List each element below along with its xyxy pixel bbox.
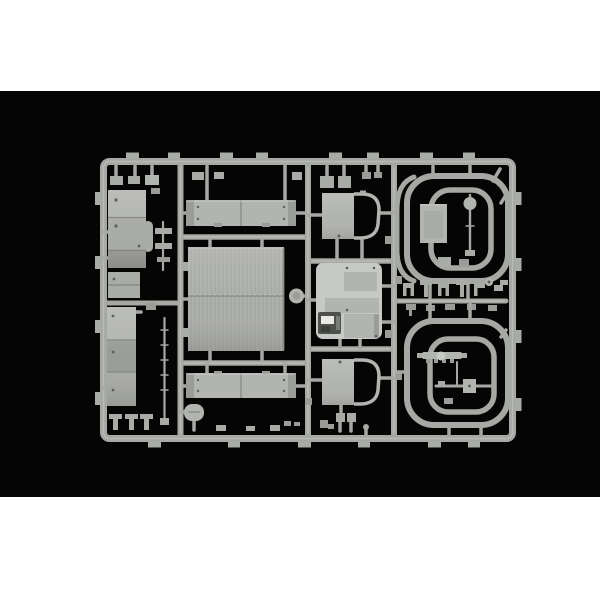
small-feet-parts xyxy=(109,414,153,430)
photo xyxy=(0,0,600,600)
sprue-photo-illustration xyxy=(0,0,600,600)
cargo-side-panel-small xyxy=(108,272,140,298)
grille-part xyxy=(318,312,341,334)
cargo-side-panel-upper xyxy=(104,190,153,268)
cab-interior-cluster xyxy=(308,263,394,348)
cargo-side-panel-lower xyxy=(104,307,141,406)
